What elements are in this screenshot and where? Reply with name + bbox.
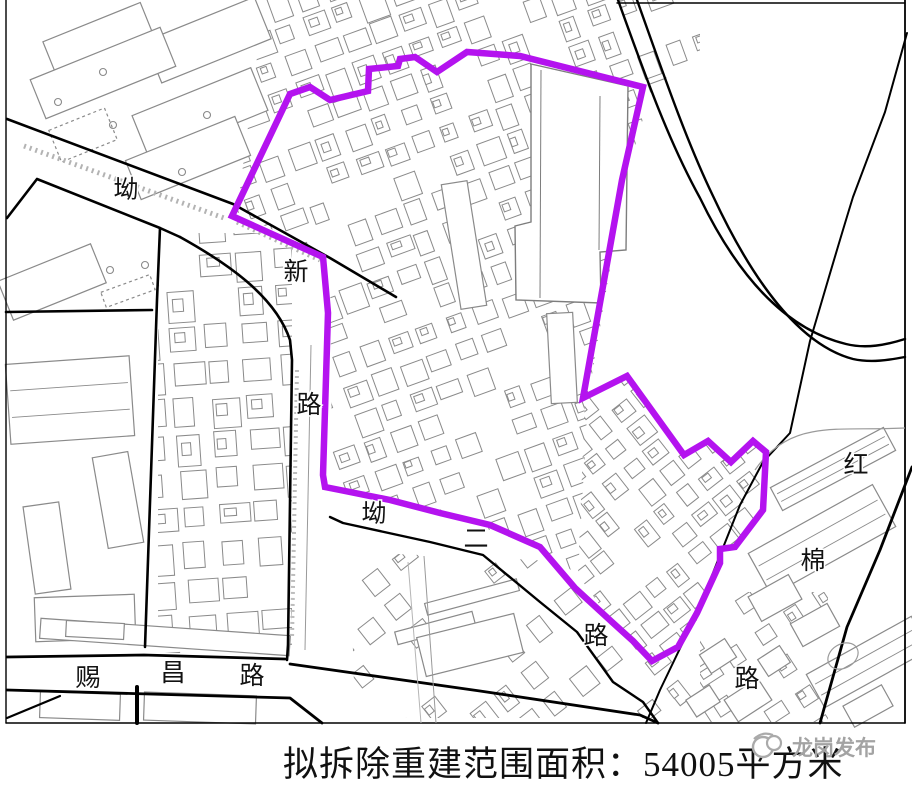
demolition-planning-map: 坳 新 路 坳 二 路 红 棉 路 赐 昌 路 [0,0,912,786]
road-label-mian: 棉 [800,547,825,575]
road-label-chang: 昌 [160,660,185,687]
road-label-lu-2: 路 [583,622,608,650]
road-label-lu-4: 路 [239,662,264,690]
road-label-xin: 新 [283,258,308,286]
area-value: 54005 [643,745,736,784]
road-label-ao-2: 坳 [361,500,386,528]
diagonal-road-1 [646,33,907,723]
large-factory-building [515,64,628,303]
road-label-lu-3: 路 [734,665,759,693]
road-cichang-north-edge [7,655,285,659]
watermark: 龙岗发布 [746,729,876,765]
road-label-er: 二 [463,526,488,553]
planning-map-page: 坳 新 路 坳 二 路 红 棉 路 赐 昌 路 拟拆除重建范围面积：54005平… [0,0,912,786]
road-label-hong: 红 [843,451,868,479]
road-label-lu-1: 路 [296,391,321,419]
road-label-ao-1: 坳 [113,176,138,204]
area-caption-label: 拟拆除重建范围面积： [283,745,643,784]
watermark-text: 龙岗发布 [792,732,876,762]
building-fabric [0,0,912,786]
swirl-bird-icon [746,729,790,765]
road-label-ci: 赐 [75,665,100,692]
